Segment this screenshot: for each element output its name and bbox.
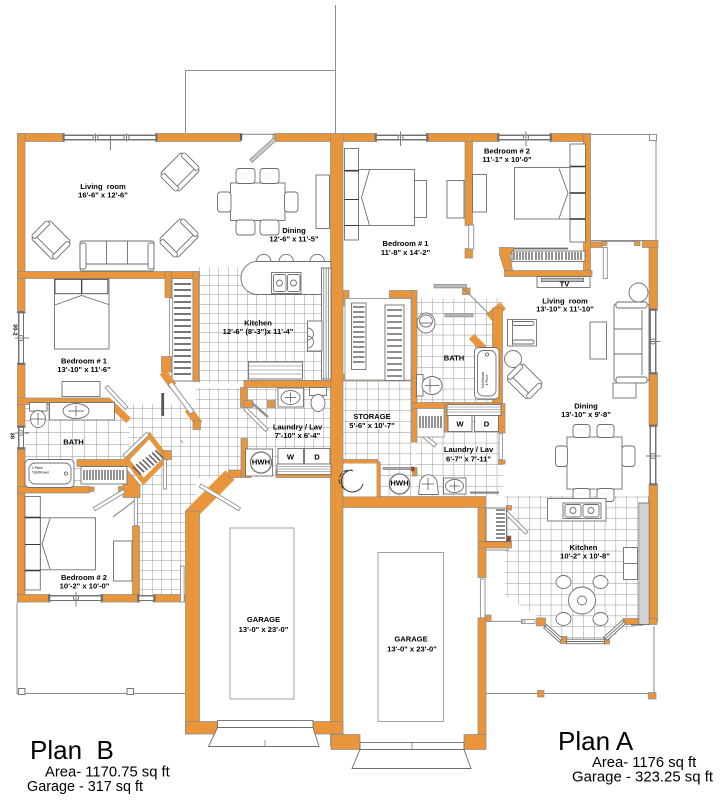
svg-text:13'-10" x 11'-10": 13'-10" x 11'-10"	[536, 305, 594, 314]
svg-text:13'-0" x 23'-0": 13'-0" x 23'-0"	[239, 625, 289, 634]
svg-text:STORAGE: STORAGE	[353, 412, 390, 421]
svg-text:HWH: HWH	[390, 479, 408, 488]
svg-text:Tub/Shower: Tub/Shower	[32, 471, 50, 475]
svg-text:6'-7" x 7'-11": 6'-7" x 7'-11"	[446, 455, 491, 464]
svg-text:10'-2" x 10'-8": 10'-2" x 10'-8"	[560, 552, 610, 561]
svg-text:D: D	[314, 453, 320, 462]
svg-text:W: W	[287, 453, 295, 462]
svg-text:TV: TV	[560, 280, 571, 289]
svg-text:Garage - 323.25 sq ft: Garage - 323.25 sq ft	[572, 770, 713, 786]
svg-text:13'-10" x 9'-8": 13'-10" x 9'-8"	[561, 410, 611, 419]
svg-text:Garage - 317 sq ft: Garage - 317 sq ft	[27, 779, 143, 795]
svg-text:HWH: HWH	[252, 458, 270, 467]
svg-text:11'-1" x 10'-0": 11'-1" x 10'-0"	[482, 155, 532, 164]
svg-text:Plan B: Plan B	[30, 735, 114, 765]
svg-text:12'-6" x 11'-5": 12'-6" x 11'-5"	[269, 235, 319, 244]
svg-text:W: W	[456, 420, 464, 429]
svg-text:10'-2" x 10'-0": 10'-2" x 10'-0"	[60, 582, 110, 591]
svg-text:Laundry / Lav: Laundry / Lav	[444, 445, 494, 454]
svg-text:30-2: 30-2	[12, 324, 18, 336]
svg-text:GARAGE: GARAGE	[247, 615, 280, 624]
svg-text:5'-6" x 10'-7": 5'-6" x 10'-7"	[349, 421, 395, 430]
svg-text:1 Piece: 1 Piece	[485, 374, 489, 385]
svg-text:13'-10" x 11'-6": 13'-10" x 11'-6"	[57, 365, 111, 374]
svg-text:12'-6" (8'-3")x 11'-4": 12'-6" (8'-3")x 11'-4"	[223, 327, 294, 336]
svg-text:1 Piece: 1 Piece	[32, 466, 43, 470]
svg-text:D: D	[484, 420, 490, 429]
svg-text:7'-10" x 6'-4": 7'-10" x 6'-4"	[275, 431, 321, 440]
svg-text:13'-0" x 23'-0": 13'-0" x 23'-0"	[387, 645, 437, 654]
svg-text:16'-6" x 12'-6": 16'-6" x 12'-6"	[78, 191, 128, 200]
svg-text:BATH: BATH	[444, 354, 465, 363]
svg-text:Bedroom # 1: Bedroom # 1	[383, 239, 430, 248]
svg-text:GARAGE: GARAGE	[394, 635, 427, 644]
svg-text:BATH: BATH	[63, 438, 84, 447]
svg-text:30: 30	[9, 433, 15, 439]
svg-text:11'-8" x 14'-2": 11'-8" x 14'-2"	[381, 248, 431, 257]
svg-text:Plan A: Plan A	[558, 726, 634, 756]
